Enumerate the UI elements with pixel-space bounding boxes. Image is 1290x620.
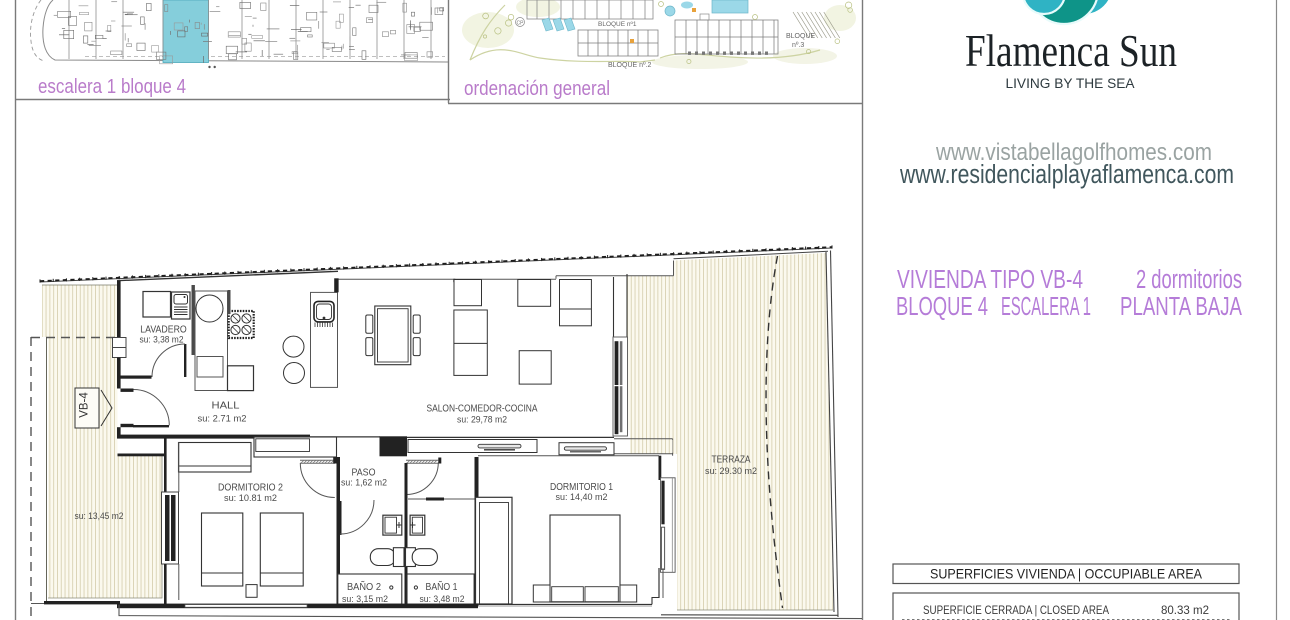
- svg-text:SALON-COMEDOR-COCINA: SALON-COMEDOR-COCINA: [427, 404, 538, 415]
- svg-text:su: 3,38 m2: su: 3,38 m2: [140, 335, 184, 346]
- svg-text:HALL: HALL: [212, 401, 240, 412]
- svg-text:BLOQUE nº.2: BLOQUE nº.2: [608, 62, 652, 69]
- svg-text:2 dormitorios: 2 dormitorios: [1136, 266, 1242, 294]
- svg-text:TERRAZA: TERRAZA: [712, 455, 751, 466]
- svg-text:VIVIENDA TIPO VB-4: VIVIENDA TIPO VB-4: [897, 266, 1083, 294]
- svg-text:su: 29.30 m2: su: 29.30 m2: [705, 466, 757, 477]
- svg-text:nº.3: nº.3: [792, 42, 804, 49]
- svg-text:VB-4: VB-4: [79, 392, 91, 418]
- svg-text:su: 2.71 m2: su: 2.71 m2: [198, 414, 247, 425]
- svg-text:su: 10.81 m2: su: 10.81 m2: [224, 493, 277, 504]
- svg-text:escalera 1 bloque 4: escalera 1 bloque 4: [38, 76, 186, 98]
- svg-text:su: 3,48 m2: su: 3,48 m2: [420, 594, 465, 605]
- svg-text:SUPERFICIES VIVIENDA | OCCUPIA: SUPERFICIES VIVIENDA | OCCUPIABLE AREA: [930, 566, 1203, 582]
- svg-text:PLANTA BAJA: PLANTA BAJA: [1120, 293, 1242, 321]
- svg-text:su: 29,78 m2: su: 29,78 m2: [457, 415, 507, 426]
- svg-text:su: 14,40 m2: su: 14,40 m2: [556, 492, 608, 503]
- svg-text:BLOQUE 4: BLOQUE 4: [896, 293, 988, 321]
- svg-text:su: 1,62 m2: su: 1,62 m2: [341, 478, 387, 489]
- svg-text:su: 13,45 m2: su: 13,45 m2: [75, 511, 124, 522]
- svg-text:BLOQUE: BLOQUE: [786, 33, 816, 40]
- svg-text:80.33 m2: 80.33 m2: [1161, 605, 1209, 617]
- svg-text:Flamenca Sun: Flamenca Sun: [965, 25, 1177, 76]
- svg-text:DORMITORIO 2: DORMITORIO 2: [218, 483, 283, 494]
- svg-text:su: 3,15 m2: su: 3,15 m2: [342, 594, 388, 605]
- svg-text:BAÑO 2: BAÑO 2: [347, 580, 381, 593]
- svg-text:ESCALERA 1: ESCALERA 1: [1001, 293, 1091, 321]
- svg-text:www.residencialplayaflamenca.c: www.residencialplayaflamenca.com: [899, 161, 1234, 189]
- svg-text:CP: CP: [517, 21, 525, 27]
- svg-text:SUPERFICIE CERRADA | CLOSED AR: SUPERFICIE CERRADA | CLOSED AREA: [923, 605, 1109, 617]
- svg-text:BAÑO 1: BAÑO 1: [426, 580, 458, 593]
- svg-text:LIVING BY THE SEA: LIVING BY THE SEA: [1006, 76, 1135, 91]
- svg-text:ordenación general: ordenación general: [464, 78, 610, 100]
- svg-text:BLOQUE nº1: BLOQUE nº1: [598, 21, 637, 28]
